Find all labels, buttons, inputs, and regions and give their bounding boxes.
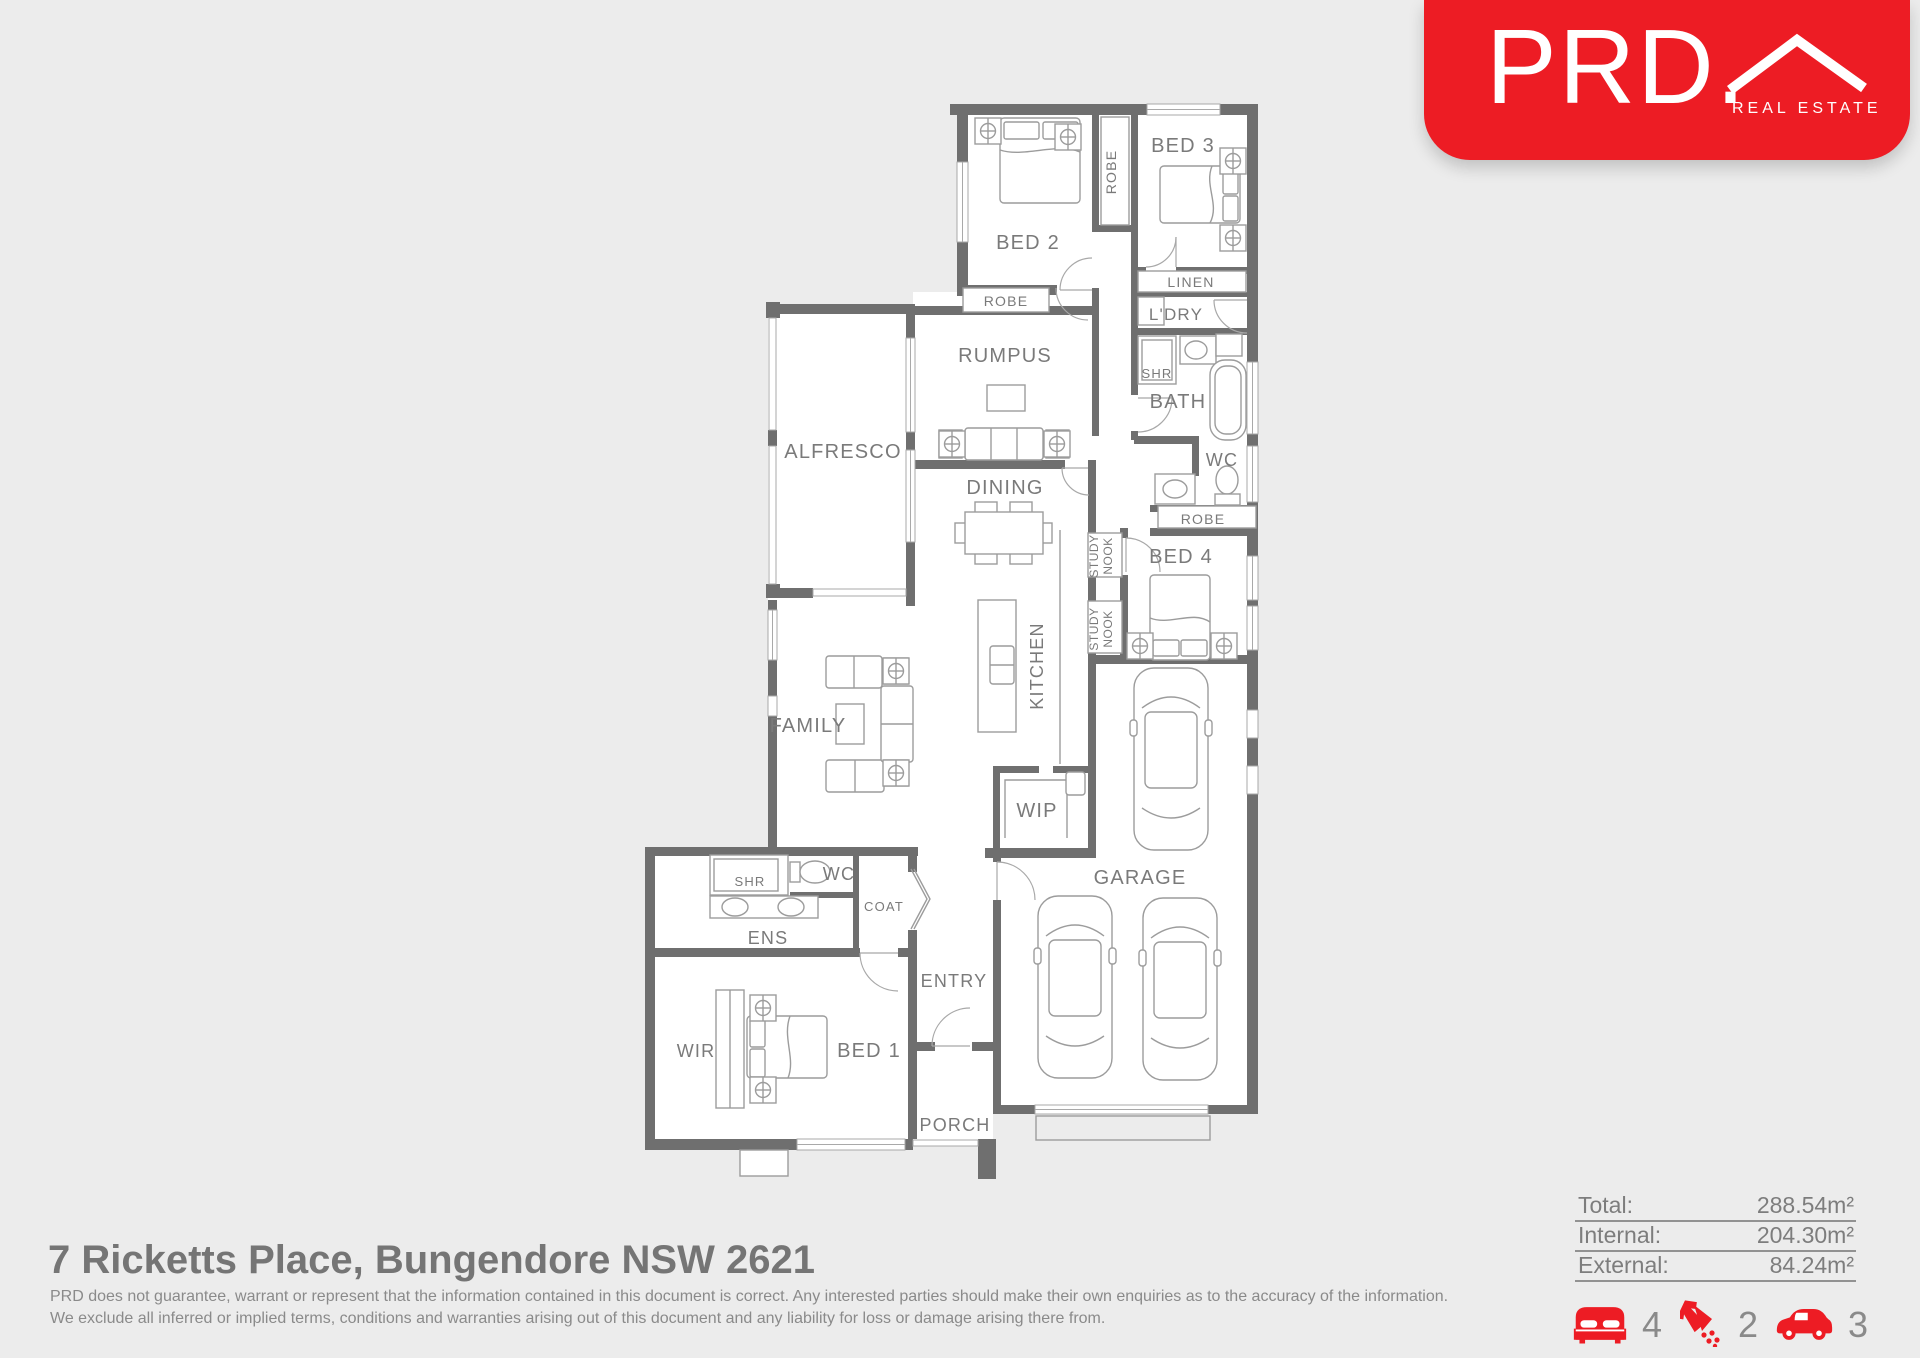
room-label-bed3: BED 3 [1151,135,1215,157]
room-label-shr-bath: SHR [1141,366,1172,381]
bedrooms-count: 4 [1642,1304,1662,1346]
floorplan: BED 2 ROBE BED 3 ROBE LINEN L'DRY RUMPUS… [0,0,1920,1358]
room-label-study2-l2: NOOK [1101,610,1115,647]
room-label-wc-main: WC [1206,450,1238,470]
page: BED 2 ROBE BED 3 ROBE LINEN L'DRY RUMPUS… [0,0,1920,1358]
prd-logo: PRD. REAL ESTATE [1424,0,1910,160]
external-label: External: [1578,1252,1669,1279]
room-label-ens: ENS [748,928,789,948]
area-row-external: External: 84.24m² [1575,1252,1856,1282]
room-label-robe-beds: ROBE [1103,150,1119,194]
external-value: 84.24m² [1770,1252,1854,1279]
room-label-dining: DINING [966,477,1043,499]
room-label-wc-ens: WC [823,864,855,884]
bed-icon [1572,1302,1628,1349]
room-label-study1-l2: NOOK [1101,537,1115,574]
area-row-total: Total: 288.54m² [1575,1192,1856,1222]
room-label-linen: LINEN [1167,274,1214,290]
room-label-study1-l1: STUDY [1087,534,1101,577]
disclaimer-line-1: PRD does not guarantee, warrant or repre… [50,1288,1448,1306]
property-address: 7 Ricketts Place, Bungendore NSW 2621 [48,1238,815,1283]
room-label-bed4: BED 4 [1149,546,1213,568]
area-row-internal: Internal: 204.30m² [1575,1222,1856,1252]
feature-icons-row: 4 2 [1572,1298,1892,1352]
room-label-coat: COAT [864,899,904,914]
total-value: 288.54m² [1757,1192,1854,1219]
bathrooms-count: 2 [1738,1304,1758,1346]
room-label-entry: ENTRY [921,971,988,991]
room-label-wir: WIR [677,1041,716,1061]
room-label-bed2: BED 2 [996,232,1060,254]
prd-brand-text: PRD. [1486,14,1747,120]
room-label-wip: WIP [1016,800,1057,822]
shower-icon [1680,1299,1724,1352]
room-label-family: FAMILY [770,715,847,737]
prd-tagline: REAL ESTATE [1732,100,1882,118]
bathrooms-feature: 2 [1680,1298,1758,1352]
room-label-bath: BATH [1150,391,1207,413]
area-summary-table: Total: 288.54m² Internal: 204.30m² Exter… [1575,1192,1856,1282]
roof-icon [1724,28,1874,98]
room-label-robe-bed2: ROBE [984,293,1028,309]
bedrooms-feature: 4 [1572,1298,1662,1352]
disclaimer-line-2: We exclude all inferred or implied terms… [50,1310,1105,1328]
cars-feature: 3 [1774,1298,1868,1352]
internal-label: Internal: [1578,1222,1661,1249]
room-label-kitchen: KITCHEN [1027,622,1047,709]
room-label-rumpus: RUMPUS [958,345,1052,367]
room-label-ldry: L'DRY [1149,305,1203,324]
room-label-shr-ens: SHR [734,874,765,889]
internal-value: 204.30m² [1757,1222,1854,1249]
room-label-robe-bed4: ROBE [1181,511,1225,527]
car-icon [1774,1304,1834,1347]
cars-count: 3 [1848,1304,1868,1346]
room-label-study2-l1: STUDY [1087,607,1101,650]
room-label-bed1: BED 1 [837,1040,901,1062]
room-label-garage: GARAGE [1094,867,1187,889]
room-label-alfresco: ALFRESCO [784,441,901,463]
total-label: Total: [1578,1192,1633,1219]
room-label-porch: PORCH [919,1115,990,1135]
